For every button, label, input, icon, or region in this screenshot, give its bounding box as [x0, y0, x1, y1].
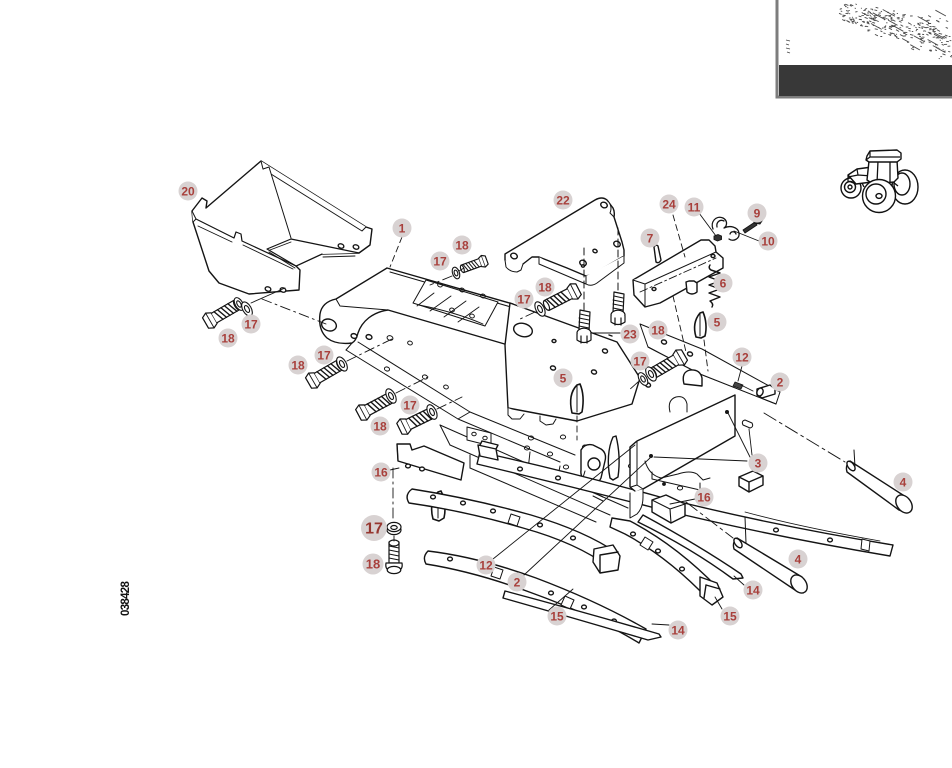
- svg-text:18: 18: [291, 359, 305, 373]
- svg-text:9: 9: [754, 207, 761, 221]
- svg-text:15: 15: [550, 610, 564, 624]
- svg-text:18: 18: [538, 281, 552, 295]
- svg-text:16: 16: [697, 491, 711, 505]
- svg-text:5: 5: [714, 316, 721, 330]
- svg-text:6: 6: [720, 277, 727, 291]
- svg-text:17: 17: [633, 355, 647, 369]
- svg-text:1: 1: [399, 222, 406, 236]
- svg-text:18: 18: [221, 332, 235, 346]
- svg-text:17: 17: [517, 293, 531, 307]
- svg-text:12: 12: [735, 351, 749, 365]
- svg-text:14: 14: [671, 624, 685, 638]
- svg-text:18: 18: [373, 420, 387, 434]
- svg-text:7: 7: [647, 232, 654, 246]
- svg-text:12: 12: [479, 559, 493, 573]
- svg-text:17: 17: [403, 399, 417, 413]
- svg-text:4: 4: [795, 553, 802, 567]
- svg-text:17: 17: [317, 349, 331, 363]
- svg-text:038428: 038428: [120, 581, 132, 616]
- svg-text:23: 23: [623, 328, 637, 342]
- svg-text:20: 20: [181, 185, 195, 199]
- svg-text:18: 18: [366, 557, 380, 572]
- svg-text:17: 17: [244, 318, 258, 332]
- svg-text:5: 5: [560, 372, 567, 386]
- svg-text:10: 10: [761, 235, 775, 249]
- svg-text:15: 15: [723, 610, 737, 624]
- svg-text:24: 24: [662, 198, 676, 212]
- svg-text:2: 2: [777, 376, 784, 390]
- svg-text:17: 17: [365, 521, 383, 538]
- svg-text:17: 17: [433, 255, 447, 269]
- svg-text:4: 4: [900, 476, 907, 490]
- svg-text:16: 16: [374, 466, 388, 480]
- svg-text:11: 11: [688, 201, 701, 215]
- svg-text:3: 3: [755, 457, 762, 471]
- svg-text:18: 18: [455, 239, 469, 253]
- svg-text:18: 18: [651, 324, 665, 338]
- svg-text:22: 22: [556, 194, 570, 208]
- svg-text:2: 2: [514, 576, 521, 590]
- svg-text:14: 14: [746, 584, 760, 598]
